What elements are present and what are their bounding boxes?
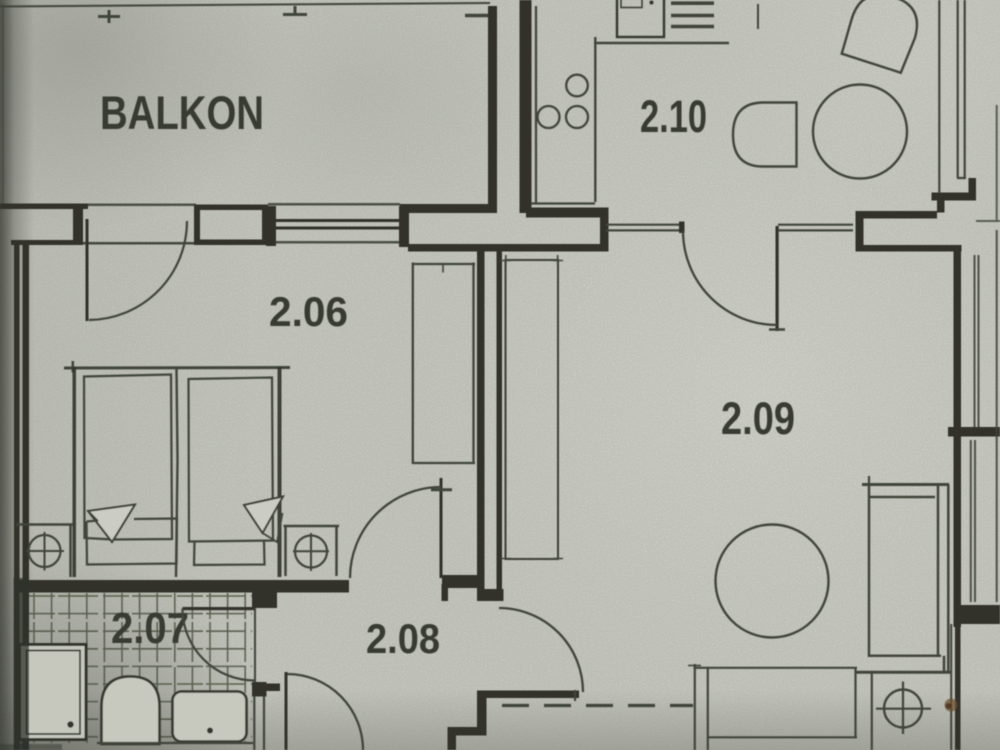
svg-text:2.07: 2.07 xyxy=(111,604,189,653)
svg-text:BALKON: BALKON xyxy=(100,86,264,139)
svg-text:2.08: 2.08 xyxy=(366,615,440,662)
svg-text:2.06: 2.06 xyxy=(269,288,348,335)
svg-text:2.10: 2.10 xyxy=(640,91,707,142)
svg-text:2.09: 2.09 xyxy=(721,393,795,444)
